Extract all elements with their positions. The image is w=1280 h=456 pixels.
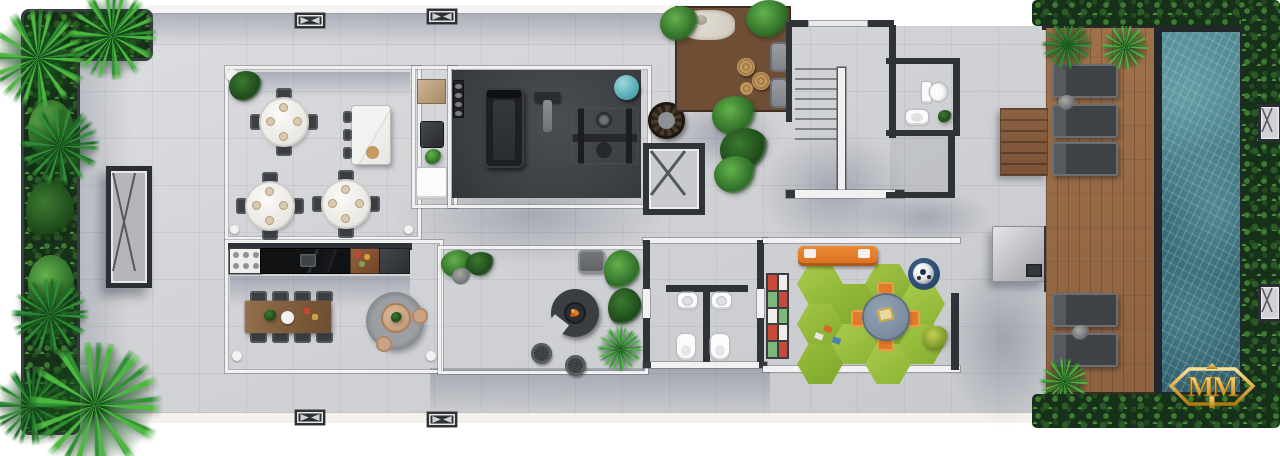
dining-chair-icon <box>293 198 304 214</box>
kids-room-bottom-wall <box>763 366 960 372</box>
utensils <box>355 252 361 258</box>
wire-stool-icon <box>565 355 586 376</box>
palm-tree-icon <box>1040 20 1094 70</box>
restrooms-right-wall <box>757 240 764 289</box>
restrooms-bottom-wall <box>643 362 767 368</box>
corner-plant <box>923 326 949 350</box>
wall-jamb <box>643 362 651 368</box>
mm-logo: MM <box>1168 362 1256 412</box>
gray-plant <box>452 268 472 285</box>
sofa-pillow <box>804 249 816 258</box>
restrooms-left-wall <box>643 240 650 289</box>
column-base <box>426 351 436 361</box>
skylight-x-icon <box>111 171 137 273</box>
column-marker-icon <box>294 409 326 426</box>
kitchen-sink-icon <box>300 254 316 267</box>
place-setting <box>265 216 274 225</box>
place-setting <box>279 201 288 210</box>
restrooms-left-wall-gap <box>643 289 650 318</box>
toy-shelf-cell <box>768 275 777 290</box>
stairs-right-wall <box>889 25 896 138</box>
sink-basin <box>716 296 727 306</box>
place-setting <box>265 187 274 196</box>
place-setting <box>279 132 288 141</box>
stove-icon <box>230 249 261 273</box>
kids-chair-icon <box>877 338 894 351</box>
shadow <box>860 190 990 245</box>
restrooms-left-wall <box>643 318 650 368</box>
table-greens <box>264 310 277 321</box>
toy-shelf-icon <box>766 273 789 359</box>
weight-bench-pad <box>543 100 552 132</box>
dining-chair-icon <box>276 88 292 99</box>
toilet-bowl <box>930 83 947 101</box>
potted-plant-icon <box>425 149 442 165</box>
column-base <box>230 225 239 234</box>
elevator-x-icon <box>649 149 687 197</box>
shadow <box>430 368 770 416</box>
charcuterie-board <box>366 146 379 159</box>
toy-shelf-cell <box>779 342 788 357</box>
column-base <box>404 225 413 234</box>
exercise-ball-icon <box>614 75 639 100</box>
dining-chair-icon <box>276 145 292 156</box>
coffee-machine-icon <box>421 122 443 147</box>
potted-plant-icon <box>229 71 263 102</box>
dining-chair-icon <box>338 227 354 238</box>
sink-basin <box>911 113 923 122</box>
deck-steps-icon <box>1000 108 1048 176</box>
column-x-icon <box>1261 287 1273 313</box>
hedge-right <box>1241 6 1280 412</box>
zen-plant <box>660 6 700 42</box>
palm-tree-icon <box>22 342 168 456</box>
centerpiece-plate <box>281 311 294 324</box>
bar-stool-icon <box>343 111 352 123</box>
restrooms-right-wall-gap <box>757 289 764 318</box>
kids-chair-icon <box>877 282 894 295</box>
palm-plant <box>596 326 644 372</box>
kids-room-right-wall <box>951 293 959 370</box>
deck-plant-gray <box>1058 95 1076 110</box>
toy-shelf-cell <box>779 309 788 324</box>
place-setting <box>279 103 288 112</box>
restrooms-right-wall <box>757 318 764 368</box>
place-setting <box>341 214 350 223</box>
bathroom-plant <box>938 110 952 123</box>
column-marker-icon <box>426 8 458 25</box>
toilet-seat <box>681 345 691 356</box>
toy-shelf-cell <box>768 309 777 324</box>
egg-chair-cushion <box>658 112 675 129</box>
stairs-window <box>808 20 868 27</box>
treadmill-belt <box>493 100 515 160</box>
skylight-icon <box>106 166 152 288</box>
dining-chair-icon <box>250 114 261 130</box>
dining-chair-icon <box>316 332 333 343</box>
ball-pentagon <box>920 269 926 275</box>
palm-tree-icon <box>1100 24 1150 70</box>
fire-pit-icon <box>564 302 586 324</box>
place-setting <box>341 185 350 194</box>
toilet-seat <box>715 345 725 356</box>
shadow <box>148 13 693 47</box>
table-plant <box>391 312 402 323</box>
wire-stool-icon <box>531 343 552 364</box>
restrooms-divider-wall <box>703 288 710 368</box>
planter-foliage <box>26 180 74 244</box>
elevator-icon <box>643 143 705 215</box>
toy-shelf-cell <box>779 325 788 340</box>
tall-plants <box>608 288 642 328</box>
place-setting <box>266 117 275 126</box>
kids-room-top-wall <box>763 238 960 243</box>
fire-embers <box>571 309 575 313</box>
column-marker-icon <box>1258 284 1280 322</box>
dining-chair-icon <box>294 332 311 343</box>
dumbbell <box>455 84 462 89</box>
armchair-icon <box>578 250 605 273</box>
kids-chair-icon <box>851 310 864 327</box>
stairs-left-wall <box>786 22 792 122</box>
treadmill-console <box>487 90 521 98</box>
bar-stool-icon <box>343 129 352 141</box>
zen-stool-icon <box>737 58 755 76</box>
bar-stool-icon <box>343 147 352 159</box>
column-marker-icon <box>294 12 326 29</box>
toy-shelf-cell <box>768 342 777 357</box>
deck-plant-gray <box>1072 325 1090 340</box>
dining-chair-icon <box>272 332 289 343</box>
dining-chair-icon <box>312 196 323 212</box>
toy-shelf-cell <box>768 292 777 307</box>
column-x-icon <box>1261 107 1273 133</box>
sun-lounger-icon <box>1052 293 1118 327</box>
sink-basin <box>682 296 693 306</box>
place-setting <box>252 201 261 210</box>
dining-chair-icon <box>262 172 278 183</box>
lounge-chair-icon <box>376 336 392 352</box>
table-items <box>304 308 310 314</box>
zen-stool-icon <box>752 72 770 90</box>
storage-right-wall <box>948 132 955 198</box>
toy-shelf-cell <box>768 325 777 340</box>
sun-lounger-icon <box>1052 142 1118 176</box>
dining-chair-icon <box>250 332 267 343</box>
grill-slot <box>1026 264 1042 277</box>
dining-chair-icon <box>262 229 278 240</box>
toy-shelf-cell <box>779 275 788 290</box>
logo-text: MM <box>1188 372 1238 403</box>
bathroom-top-wall <box>886 58 960 64</box>
toy-shelf-cell <box>779 292 788 307</box>
lounge-chair-icon <box>412 308 428 324</box>
dining-chair-icon <box>307 114 318 130</box>
wall-jamb <box>786 190 795 198</box>
pantry-cabinet <box>418 80 445 103</box>
kids-chair-icon <box>907 310 920 327</box>
restrooms-top-wall <box>643 238 767 243</box>
dining-chair-icon <box>338 170 354 181</box>
dining-chair-icon <box>236 198 247 214</box>
multi-gym-weights <box>596 112 612 128</box>
pool-water <box>1162 32 1240 392</box>
stairs-icon <box>795 64 839 140</box>
floorplan-canvas: MM <box>0 0 1280 456</box>
bathroom-right-wall <box>953 58 960 136</box>
page-cut-top-right <box>893 0 1046 26</box>
logo-crown-notch <box>1206 363 1218 369</box>
place-setting <box>293 117 302 126</box>
tall-plants <box>604 250 640 292</box>
place-setting <box>355 199 364 208</box>
sofa-pillow <box>858 249 870 258</box>
dining-chair-icon <box>369 196 380 212</box>
palm-tree-icon <box>8 278 92 352</box>
zen-stool-icon <box>740 82 753 95</box>
palm-tree-icon <box>20 104 100 188</box>
column-marker-icon <box>1258 104 1280 142</box>
stairs-divider-wall <box>838 68 845 194</box>
pantry-counter <box>417 168 446 198</box>
page-cut-stairs-top <box>790 0 893 20</box>
place-setting <box>328 199 337 208</box>
garden-bush <box>714 156 758 194</box>
column-base <box>232 351 242 361</box>
dark-cabinet <box>380 249 409 273</box>
storage-floor-shade <box>890 136 948 192</box>
storage-bottom-wall <box>886 192 955 198</box>
column-marker-icon <box>426 411 458 428</box>
